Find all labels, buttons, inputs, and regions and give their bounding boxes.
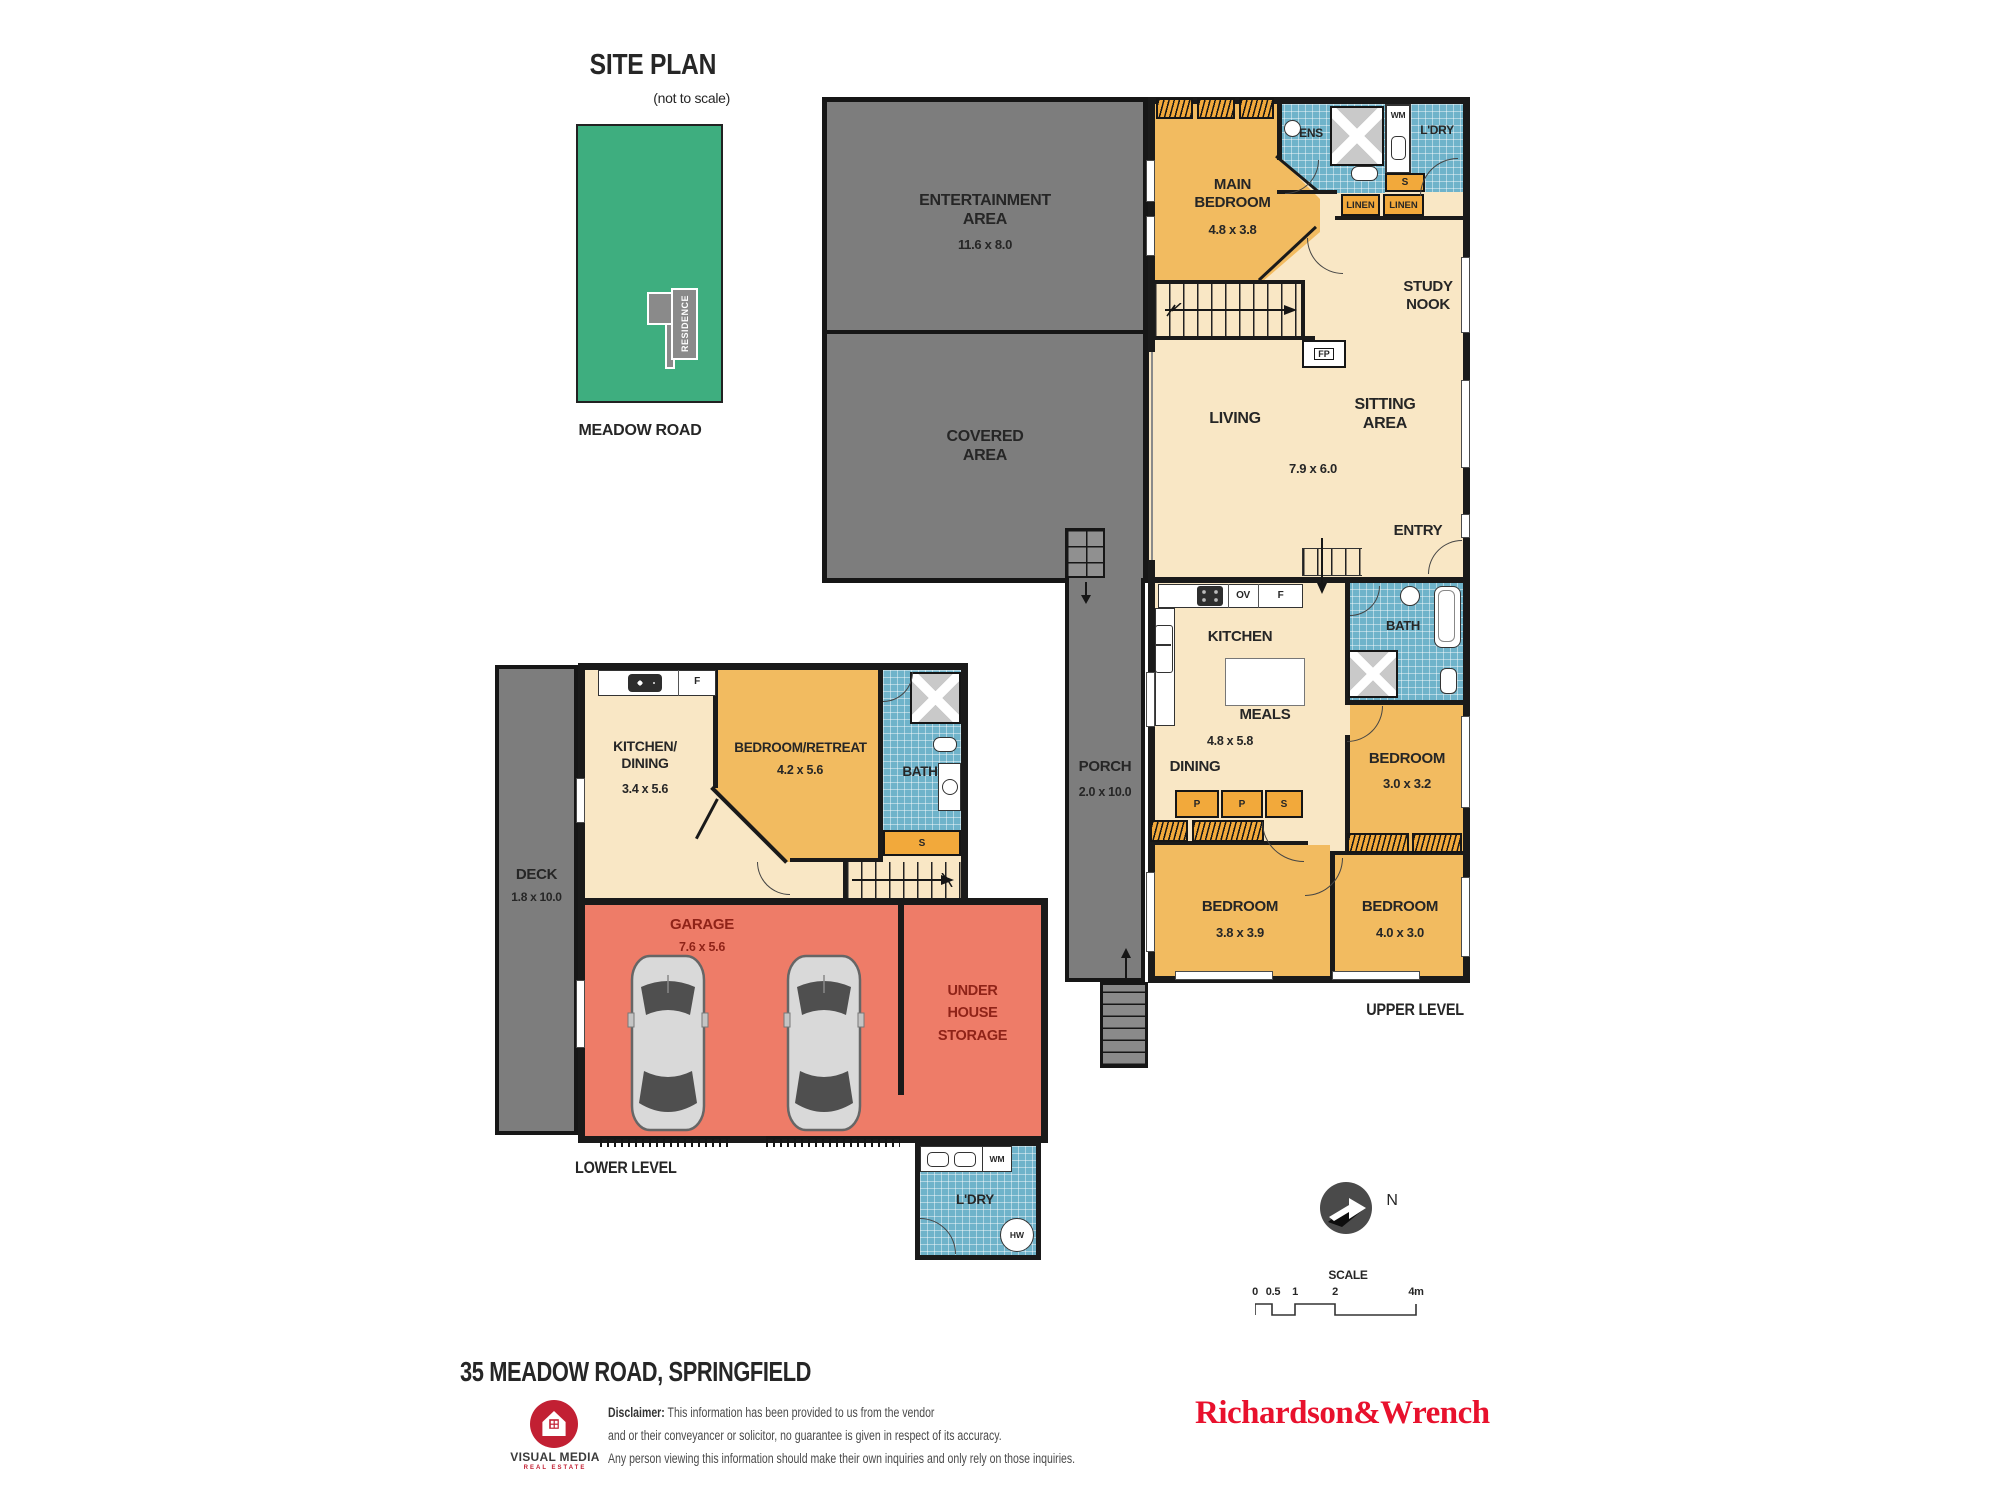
scale-bar-line bbox=[1255, 1302, 1425, 1318]
footer: 35 MEADOW ROAD, SPRINGFIELD VISUAL MEDIA… bbox=[0, 1340, 2000, 1500]
disclaimer-line-2: and or their conveyancer or solicitor, n… bbox=[608, 1425, 1154, 1448]
lower-kitchen-dims: 3.4 x 5.6 bbox=[609, 782, 681, 797]
retreat-label: BEDROOM/RETREAT bbox=[728, 740, 873, 756]
disclaimer-label: Disclaimer: bbox=[608, 1405, 665, 1420]
north-arrow-icon bbox=[1320, 1182, 1372, 1234]
lower-level-plan: DECK 1.8 x 10.0 F S bbox=[0, 0, 2000, 1500]
disclaimer-line-1: Disclaimer: This information has been pr… bbox=[608, 1402, 1154, 1425]
garage-label: GARAGE bbox=[652, 916, 752, 934]
scale-title: SCALE bbox=[1320, 1268, 1376, 1282]
agency-logo: Richardson&Wrench bbox=[1195, 1395, 1515, 1432]
deck-label: DECK bbox=[497, 866, 576, 884]
disclaimer-line-3: Any person viewing this information shou… bbox=[608, 1448, 1154, 1471]
sink-icon bbox=[954, 1152, 976, 1167]
scale-tick-4m: 4m bbox=[1404, 1286, 1428, 1299]
garage-door bbox=[600, 1136, 730, 1147]
shower-icon bbox=[910, 672, 961, 724]
hot-water-icon: HW bbox=[1000, 1218, 1034, 1252]
car-icon bbox=[627, 953, 709, 1133]
vanity-basin bbox=[942, 779, 958, 795]
deck-dims: 1.8 x 10.0 bbox=[497, 890, 576, 904]
s-label: S bbox=[919, 838, 926, 849]
wall bbox=[898, 905, 904, 1095]
scale-tick-1: 1 bbox=[1288, 1286, 1302, 1299]
window bbox=[576, 980, 585, 1048]
scale-bar: SCALE 0 0.5 1 2 4m bbox=[1240, 1268, 1440, 1320]
page-title: 35 MEADOW ROAD, SPRINGFIELD bbox=[460, 1355, 819, 1388]
car-icon bbox=[783, 953, 865, 1133]
wm-label: WM bbox=[989, 1154, 1004, 1164]
storage-s-box: S bbox=[883, 830, 961, 856]
hw-label: HW bbox=[1010, 1230, 1024, 1240]
toilet-icon bbox=[933, 737, 957, 752]
washing-machine-box: WM bbox=[982, 1146, 1012, 1172]
disclaimer-text: This information has been provided to us… bbox=[668, 1405, 935, 1420]
house-icon bbox=[530, 1400, 578, 1448]
logo-tagline: REAL ESTATE bbox=[505, 1465, 605, 1472]
scale-tick-2: 2 bbox=[1328, 1286, 1342, 1299]
retreat-dims: 4.2 x 5.6 bbox=[770, 763, 830, 778]
floor-plan-page: SITE PLAN (not to scale) RESIDENCE MEADO… bbox=[0, 0, 2000, 1500]
lower-level-label: LOWER LEVEL bbox=[575, 1158, 694, 1178]
lower-bath-label: BATH bbox=[890, 764, 950, 780]
storage-label: UNDER HOUSE STORAGE bbox=[925, 980, 1020, 1047]
north-label: N bbox=[1382, 1192, 1402, 1211]
sink-icon bbox=[927, 1152, 949, 1167]
sink-icon bbox=[628, 674, 662, 692]
visual-media-logo: VISUAL MEDIA REAL ESTATE bbox=[505, 1400, 605, 1478]
disclaimer: Disclaimer: This information has been pr… bbox=[608, 1402, 1154, 1471]
garage-door bbox=[766, 1136, 900, 1147]
ldry-label: L'DRY bbox=[945, 1192, 1005, 1208]
window bbox=[576, 778, 585, 823]
fridge-label: F bbox=[678, 676, 716, 688]
lower-kitchen-label: KITCHEN/ DINING bbox=[609, 738, 681, 771]
scale-tick-0: 0 bbox=[1248, 1286, 1262, 1299]
logo-circle-icon bbox=[530, 1400, 578, 1448]
logo-name: VISUAL MEDIA bbox=[505, 1450, 605, 1464]
stairs-arrow-icon bbox=[852, 873, 956, 887]
scale-tick-05: 0.5 bbox=[1264, 1286, 1282, 1299]
compass: N bbox=[1320, 1182, 1410, 1234]
